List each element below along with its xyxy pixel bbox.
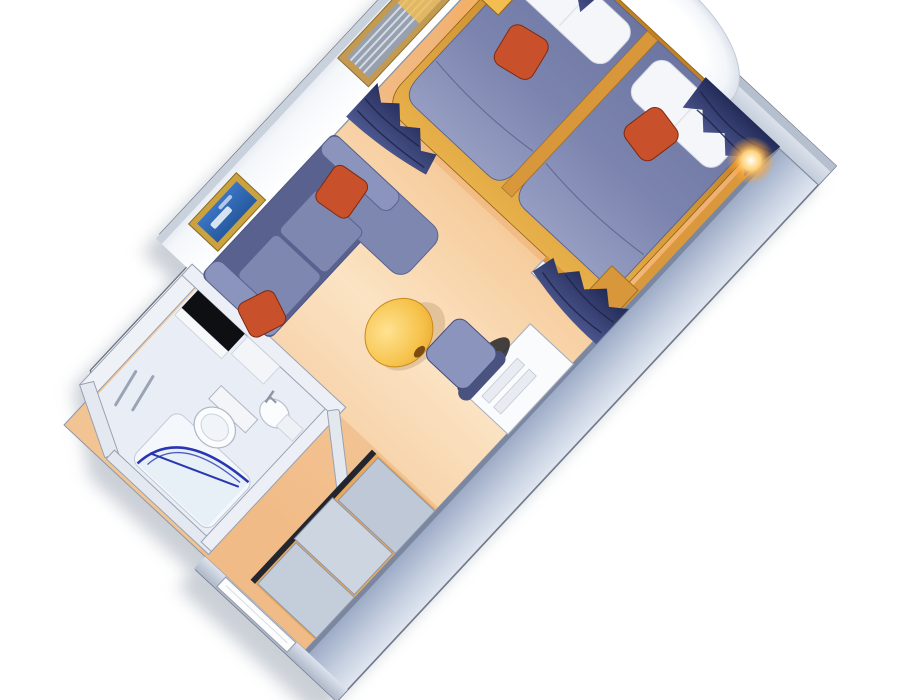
stateroom-floorplan <box>0 0 900 700</box>
floorplan-canvas <box>0 0 900 700</box>
cabin <box>9 0 855 700</box>
